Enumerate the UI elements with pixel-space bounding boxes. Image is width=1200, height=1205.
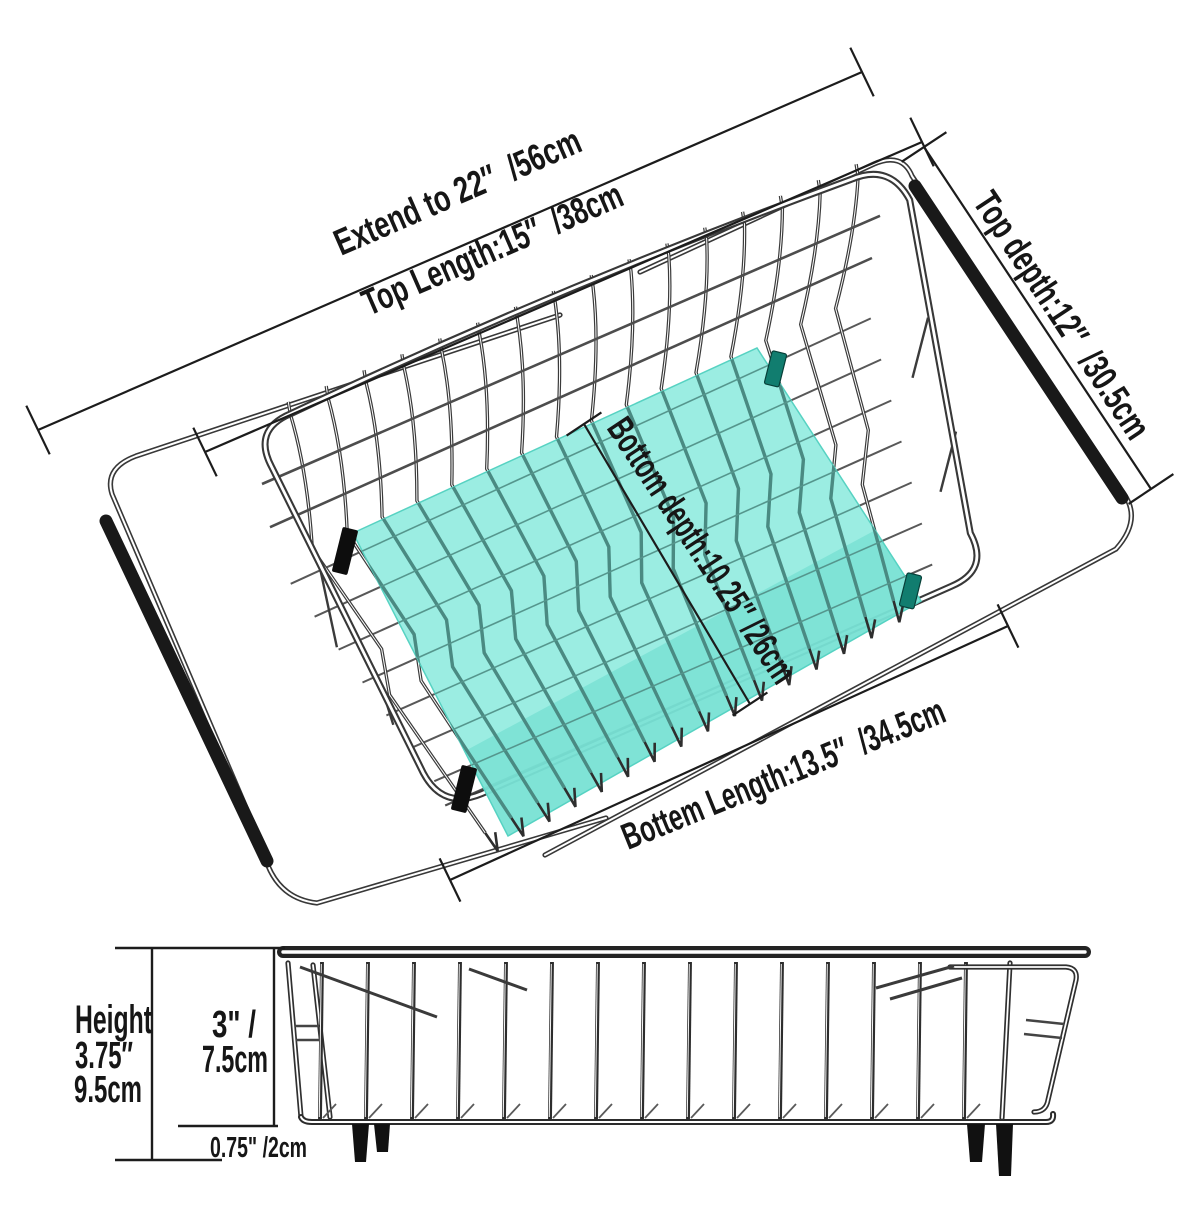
svg-text:7.5cm: 7.5cm <box>202 1039 268 1081</box>
svg-text:9.5cm: 9.5cm <box>74 1069 142 1111</box>
svg-text:0.75" /2cm: 0.75" /2cm <box>210 1132 307 1164</box>
